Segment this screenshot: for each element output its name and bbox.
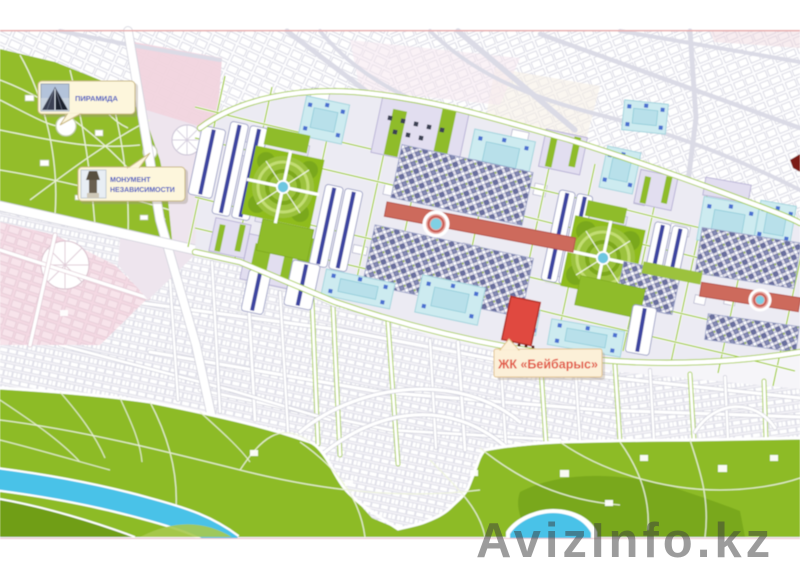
svg-text:НЕЗАВИСИМОСТИ: НЕЗАВИСИМОСТИ [110,187,175,194]
svg-text:AvizInfo.kz: AvizInfo.kz [476,514,774,566]
svg-text:МОНУМЕНТ: МОНУМЕНТ [110,177,151,184]
svg-text:ЖК «Бейбарыс»: ЖК «Бейбарыс» [497,358,598,372]
svg-text:ПИРАМИДА: ПИРАМИДА [75,94,119,103]
